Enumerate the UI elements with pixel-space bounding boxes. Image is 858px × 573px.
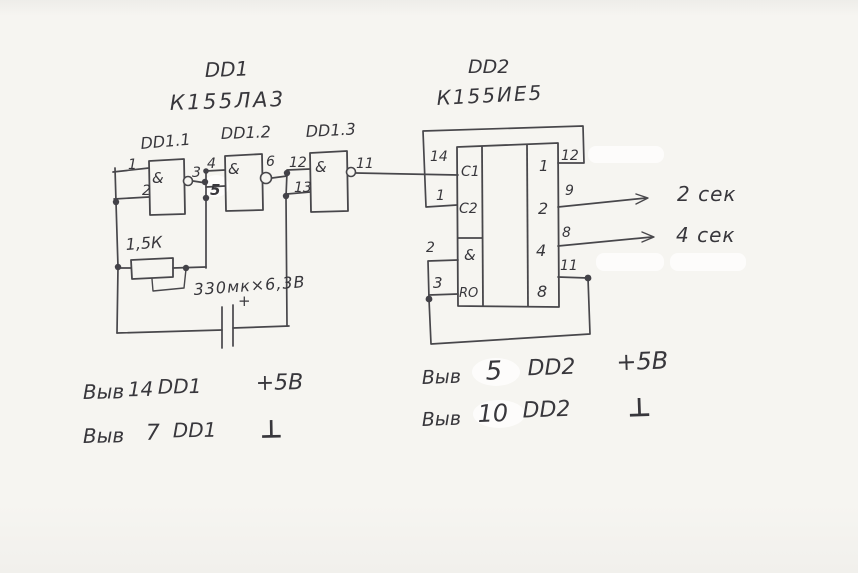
note-chip: DD2 [527, 355, 576, 382]
pin-number: 5 [210, 181, 220, 199]
dd2-ref-label: DD2 [468, 56, 509, 78]
gate-dd1-3: DD1.3 & 12 13 11 [287, 119, 374, 212]
gate-label: DD1.1 [140, 130, 192, 153]
note-value: +5В [616, 346, 669, 376]
and-gate-body [149, 159, 185, 215]
note-value: +5В [256, 370, 304, 396]
note-pin: 14 [128, 377, 154, 401]
wire-bottom-left [117, 330, 222, 333]
wire-reset-feedback [429, 278, 590, 344]
output-weight-1: 1 [539, 157, 549, 175]
dd1-section: DD1 К155ЛА3 DD1.1 & 1 2 3 DD1.2 & 4 5 6 [113, 56, 458, 348]
resistor: 1,5К [125, 232, 173, 279]
pin-number: 2 [142, 183, 151, 199]
inverter-bubble [261, 173, 272, 184]
dd2-part-label: К155ИЕ5 [436, 80, 544, 110]
hand-drawn-schematic: DD1 К155ЛА3 DD1.1 & 1 2 3 DD1.2 & 4 5 6 [0, 0, 858, 573]
junction-dot [426, 296, 433, 303]
pin-number: 11 [356, 156, 374, 172]
resistor-value: 1,5К [125, 232, 164, 254]
wire-pin8-out [558, 237, 652, 246]
wire-pin3-r0 [429, 294, 458, 295]
ground-icon: ⊥ [260, 415, 283, 444]
wire-left-vertical [115, 168, 118, 333]
note-pin: 7 [146, 421, 160, 446]
pin-number: 1 [128, 157, 137, 173]
pin-number: 3 [192, 165, 201, 181]
and-symbol: & [228, 160, 240, 178]
dd2-section: DD2 К155ИЕ5 C1 C2 & RO 1 2 4 8 14 1 2 3 … [423, 56, 736, 344]
pin-number: 12 [289, 155, 307, 171]
pin-number-2: 2 [426, 240, 435, 256]
input-label-c2: C2 [459, 201, 478, 217]
output-arrows: 2 сек 4 сек [558, 182, 736, 247]
pin-number-9: 9 [565, 183, 574, 199]
and-symbol: & [152, 169, 164, 187]
note-dd2-gnd: Выв 10 DD2 ⊥ [421, 393, 652, 431]
gate-dd1-2: DD1.2 & 4 5 6 [206, 122, 275, 211]
dd1-part-label: К155ЛА3 [169, 87, 286, 115]
ic-left-strip-divider [482, 146, 483, 306]
inverter-bubble [347, 168, 356, 177]
wire-pin9-out [558, 198, 646, 207]
note-prefix: Выв [83, 423, 125, 448]
gate-label: DD1.2 [220, 122, 271, 143]
output-weight-8: 8 [537, 282, 547, 301]
note-prefix: Выв [83, 379, 125, 404]
junction-dot [585, 275, 592, 282]
and-symbol: & [315, 158, 327, 176]
dd1-wiring [115, 168, 458, 333]
resistor-body [131, 258, 173, 279]
output-label-2sec: 2 сек [677, 182, 736, 206]
note-prefix: Выв [421, 366, 461, 389]
note-chip: DD1 [158, 374, 202, 399]
pin-number: 6 [266, 154, 275, 170]
output-weight-2: 2 [538, 199, 548, 218]
input-label-r0: RO [459, 286, 478, 301]
gate-label: DD1.3 [305, 119, 356, 141]
counter-pin-numbers: 14 1 2 3 12 9 8 11 [426, 148, 579, 292]
gate-dd1-1: DD1.1 & 1 2 3 [113, 130, 201, 215]
ic-right-strip-divider [527, 144, 528, 307]
wire-bottom-right [233, 326, 289, 328]
note-chip: DD2 [522, 397, 571, 424]
output-label-4sec: 4 сек [676, 223, 735, 247]
capacitor: + 330мк×6,3В [193, 272, 306, 348]
note-prefix: Выв [421, 408, 461, 431]
pin-number-8: 8 [562, 225, 571, 241]
wire-gate3-out-to-c1 [356, 173, 458, 175]
note-chip: DD1 [173, 418, 217, 443]
input-label-c1: C1 [461, 164, 480, 180]
resistor-lead-right [173, 267, 206, 268]
capacitor-value: 330мк×6,3В [193, 272, 306, 299]
wire-cascade-pin12-to-c2 [423, 126, 584, 207]
pin-number: 13 [294, 180, 312, 196]
wire-pin11-stub [558, 277, 588, 278]
counter-ic-body: C1 C2 & RO 1 2 4 8 [457, 143, 559, 307]
note-pin: 5 [485, 356, 503, 387]
input-label-and: & [464, 246, 476, 264]
resistor-tap-loop [152, 269, 186, 291]
note-pin: 10 [477, 399, 509, 428]
note-dd2-vcc: Выв 5 DD2 +5В [421, 346, 669, 389]
pin-number-12: 12 [561, 148, 579, 164]
schematic-canvas: DD1 К155ЛА3 DD1.1 & 1 2 3 DD1.2 & 4 5 6 [0, 0, 858, 573]
note-dd1-vcc: Выв 14 DD1 +5В [83, 370, 304, 404]
ground-icon: ⊥ [627, 393, 652, 424]
pin-number-1: 1 [436, 188, 445, 204]
pin-number-3: 3 [433, 274, 443, 292]
output-weight-4: 4 [536, 241, 546, 260]
pin-number-14: 14 [430, 149, 448, 165]
note-dd1-gnd: Выв 7 DD1 ⊥ [83, 415, 283, 448]
dd1-ref-label: DD1 [204, 56, 248, 82]
power-notes: Выв 14 DD1 +5В Выв 7 DD1 ⊥ Выв 5 DD2 +5В… [83, 346, 669, 448]
wire-gate2-out [272, 176, 287, 178]
pin-number-11: 11 [560, 258, 578, 274]
